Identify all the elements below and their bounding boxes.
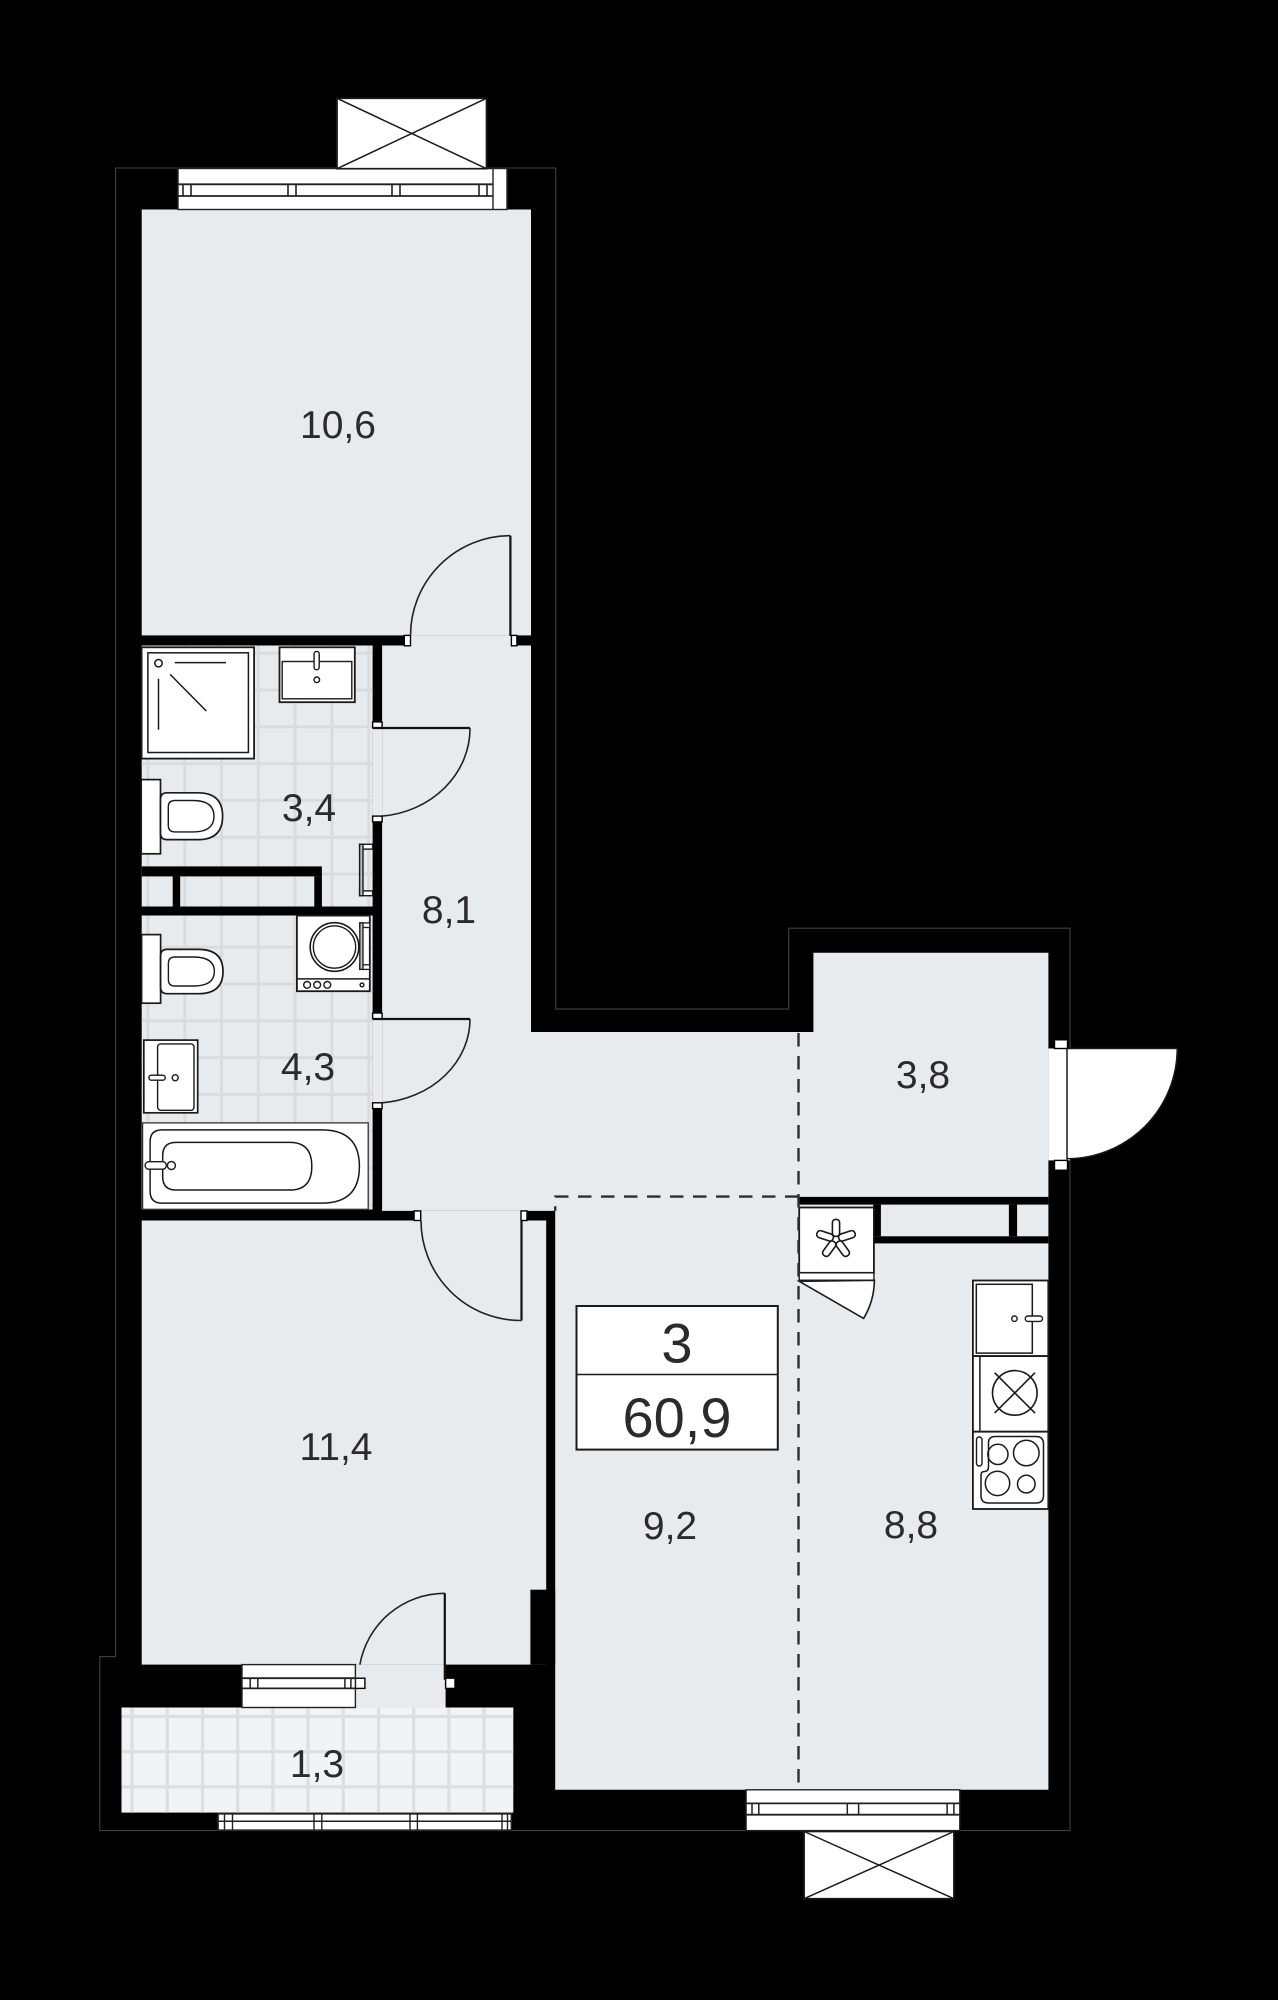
svg-text:8,8: 8,8 — [884, 1504, 938, 1547]
svg-text:10,6: 10,6 — [300, 404, 376, 447]
svg-text:11,4: 11,4 — [299, 1426, 372, 1469]
svg-text:8,1: 8,1 — [422, 889, 476, 932]
svg-text:3: 3 — [661, 1312, 692, 1375]
svg-text:3,4: 3,4 — [282, 787, 336, 830]
svg-text:60,9: 60,9 — [623, 1386, 732, 1449]
svg-text:4,3: 4,3 — [281, 1046, 335, 1089]
svg-text:3,8: 3,8 — [896, 1054, 950, 1097]
svg-text:9,2: 9,2 — [643, 1505, 697, 1548]
svg-text:1,3: 1,3 — [290, 1743, 344, 1786]
